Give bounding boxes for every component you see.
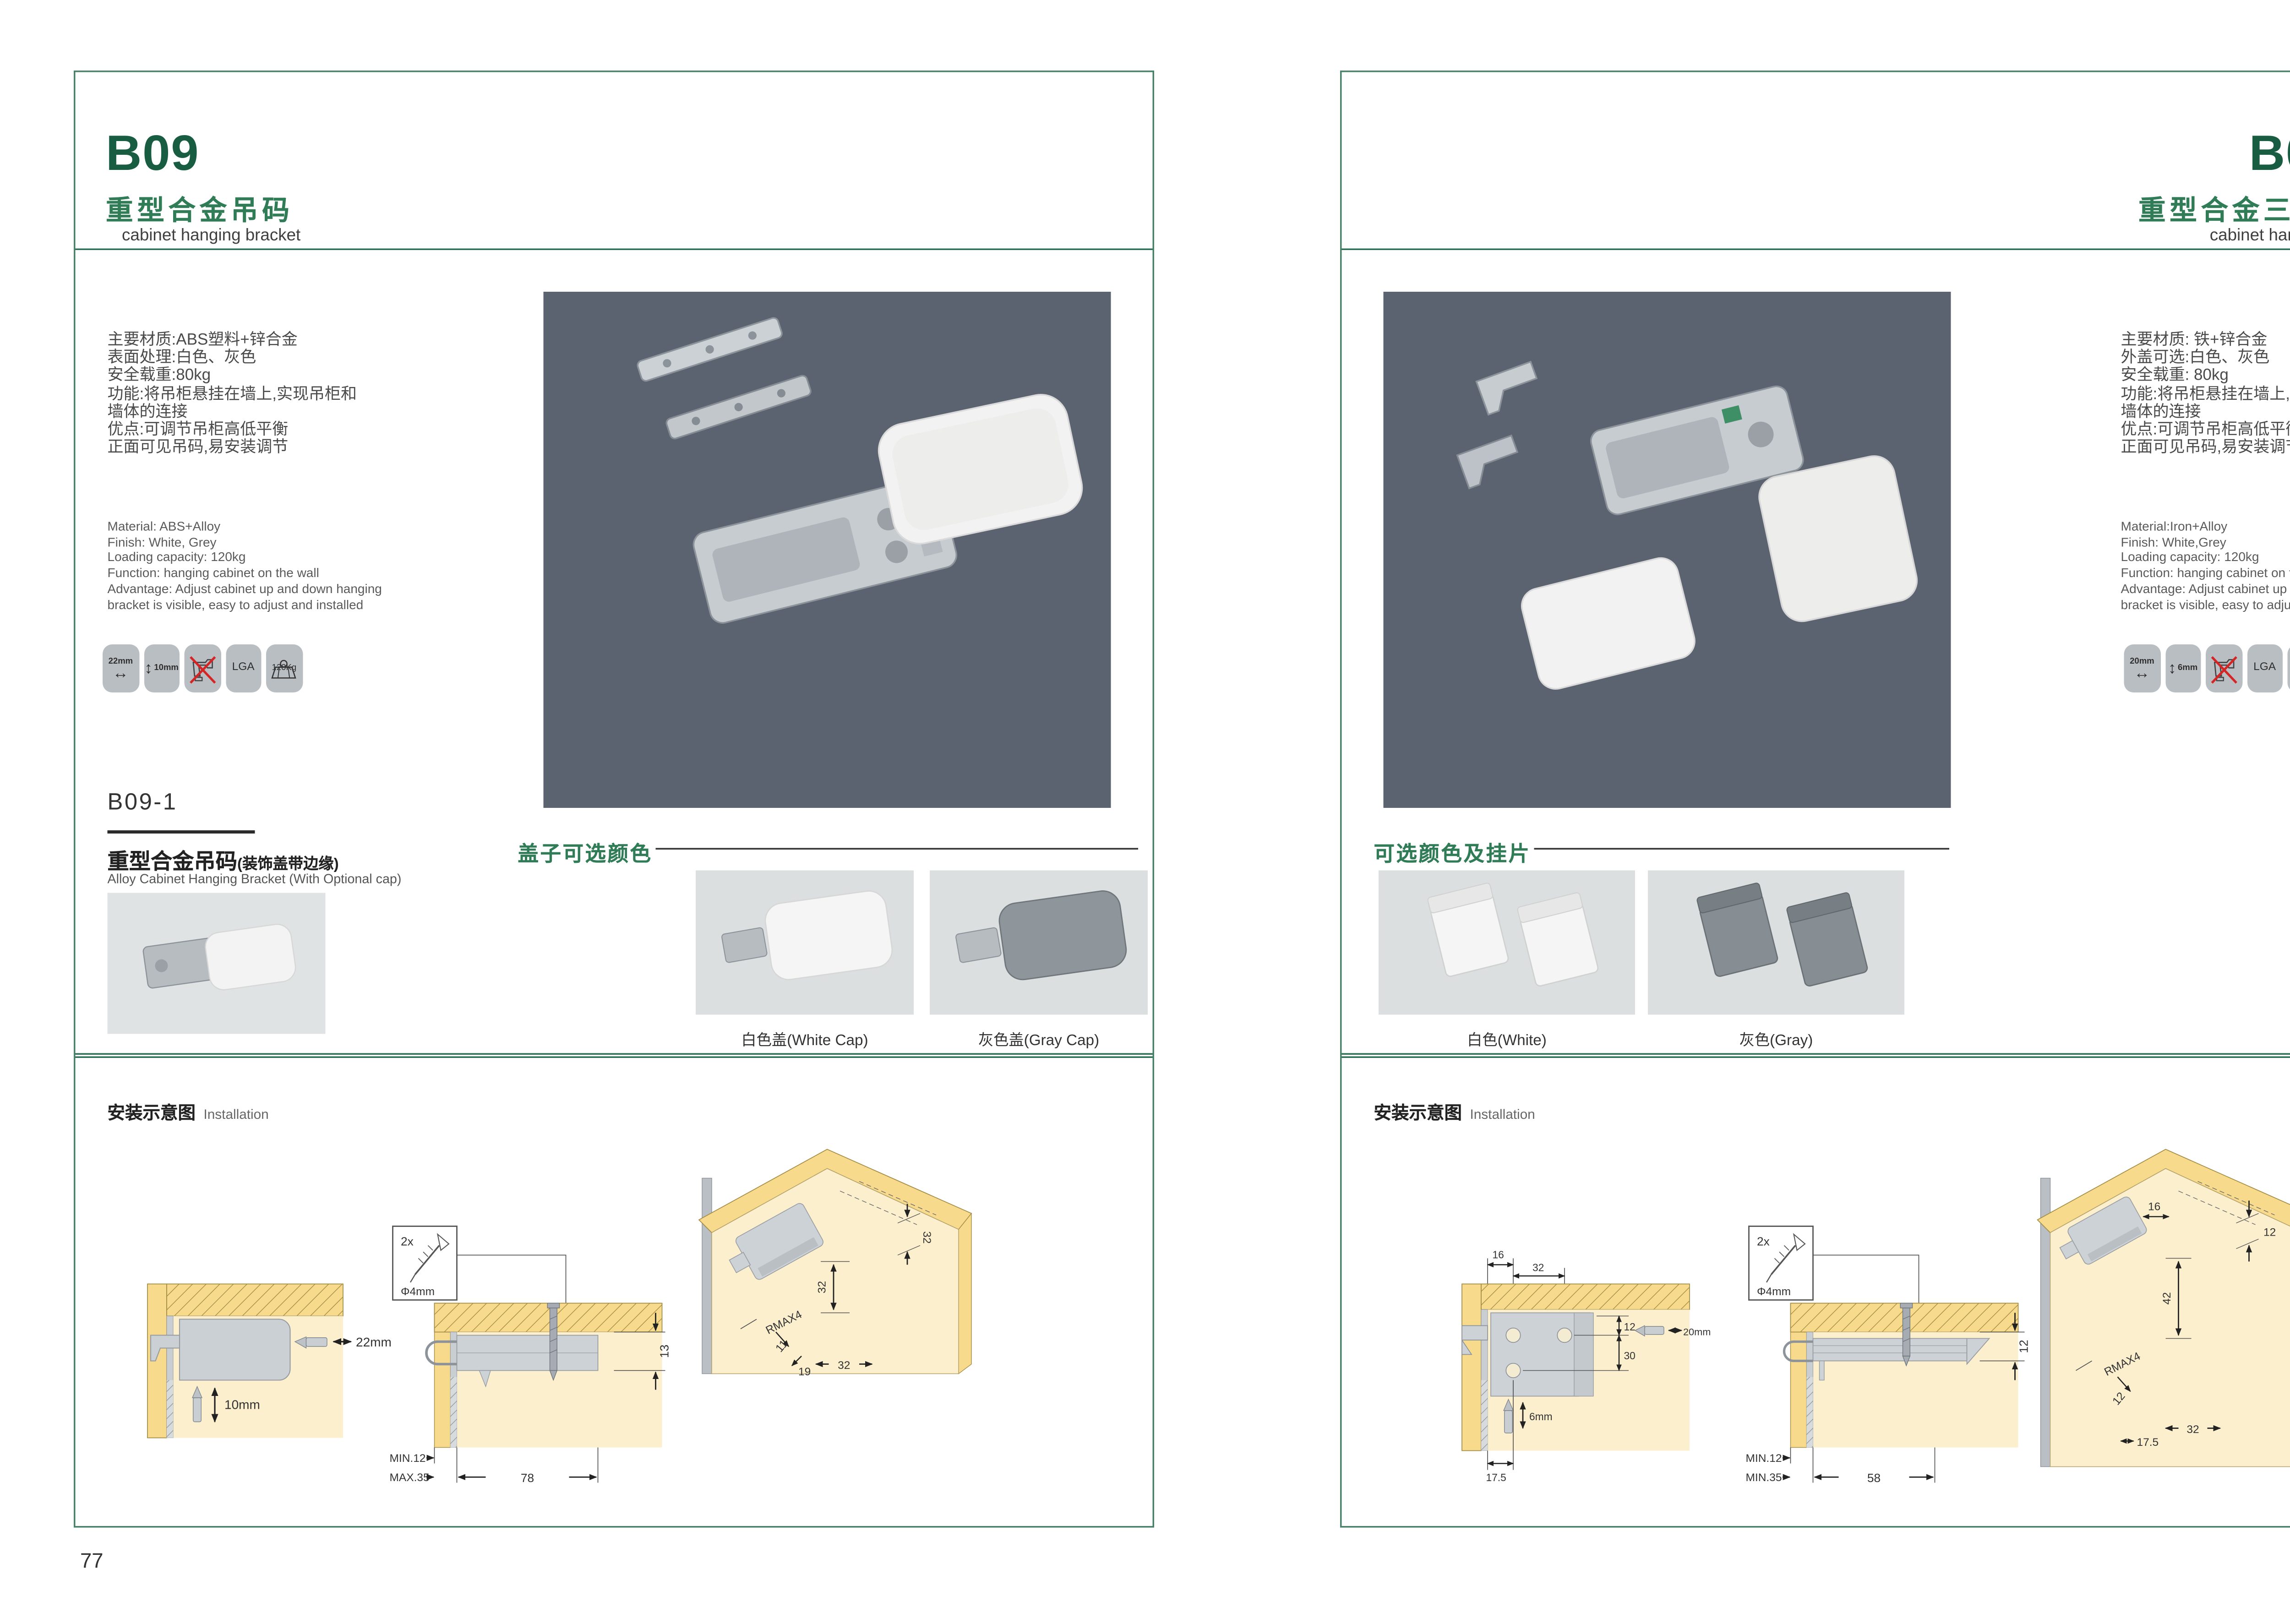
sub-underline bbox=[108, 830, 255, 833]
weight-icon bbox=[268, 658, 300, 679]
dim-label: 30 bbox=[1624, 1350, 1636, 1362]
vertical-arrow-icon: ↕ bbox=[144, 661, 153, 676]
dim-label: 19 bbox=[798, 1366, 811, 1378]
dim-label: 42 bbox=[2161, 1292, 2173, 1304]
section-divider bbox=[1342, 1053, 2290, 1059]
screw-dia-label: Φ4mm bbox=[1757, 1286, 1791, 1298]
height-value: 10mm bbox=[154, 664, 179, 673]
dim-label: 20mm bbox=[1683, 1326, 1711, 1338]
dim-label: MIN.12 bbox=[390, 1452, 426, 1465]
spec-line: 外盖可选:白色、灰色 bbox=[2121, 350, 2290, 368]
sub-title-en: Alloy Cabinet Hanging Bracket (With Opti… bbox=[108, 872, 402, 887]
dim-label: 16 bbox=[2148, 1201, 2160, 1213]
spec-line: Finish: White, Grey bbox=[108, 535, 556, 550]
dim-label: MIN.35 bbox=[1746, 1471, 1782, 1484]
header-divider bbox=[1342, 249, 2290, 250]
product-photo bbox=[544, 292, 1111, 808]
spec-line: 功能:将吊柜悬挂在墙上,实现吊柜和 bbox=[2121, 386, 2290, 403]
gray-clip-photo bbox=[1648, 871, 1904, 1015]
dim-label: 17.5 bbox=[1486, 1471, 1506, 1483]
spec-line: 正面可见吊码,易安装调节 bbox=[108, 440, 540, 458]
installation-title-en: Installation bbox=[1470, 1106, 1535, 1122]
dim-label: 32 bbox=[2186, 1423, 2199, 1436]
spec-text-en: Material:Iron+Alloy Finish: White,Grey L… bbox=[2121, 519, 2290, 613]
spec-line: 表面处理:白色、灰色 bbox=[108, 350, 540, 368]
spec-text-en: Material: ABS+Alloy Finish: White, Grey … bbox=[108, 519, 556, 613]
dim-label: 12 bbox=[1624, 1321, 1636, 1333]
spec-line: 安全载重:80kg bbox=[108, 368, 540, 386]
installation-title: 安装示意图Installation bbox=[1374, 1098, 1535, 1127]
spec-line: 正面可见吊码,易安装调节 bbox=[2121, 440, 2290, 458]
product-title-cn: 重型合金吊码 bbox=[106, 188, 294, 228]
sub-title-main: 重型合金吊码 bbox=[108, 850, 238, 874]
load-capacity-icon: 120Kg bbox=[266, 644, 302, 692]
spec-line: 主要材质: 铁+锌合金 bbox=[2121, 332, 2290, 350]
dim-label: 22mm bbox=[356, 1335, 392, 1349]
color-section-title: 可选颜色及挂片 bbox=[1374, 837, 1531, 867]
spec-text-cn: 主要材质: 铁+锌合金 外盖可选:白色、灰色 安全载重: 80kg 功能:将吊柜… bbox=[2121, 332, 2290, 458]
dim-label: 32 bbox=[921, 1231, 933, 1243]
dim-label: 16 bbox=[1493, 1249, 1504, 1261]
dim-label: 32 bbox=[816, 1281, 829, 1293]
lga-cert-icon: LGA bbox=[2246, 644, 2283, 692]
product-title-en: cabinet hanging bracket bbox=[2210, 226, 2290, 245]
dim-label: 6mm bbox=[1529, 1411, 1553, 1422]
white-caption: 白色(White) bbox=[1379, 1028, 1635, 1050]
spec-line: Loading capacity: 120kg bbox=[108, 550, 556, 566]
dim-label: 13 bbox=[658, 1345, 671, 1358]
catalog-page-right: B09-3 重型合金三孔吊码 cabinet hanging bracket bbox=[1340, 71, 2290, 1528]
spec-line: 墙体的连接 bbox=[2121, 403, 2290, 421]
horizontal-arrow-icon: ↔ bbox=[2134, 666, 2150, 681]
spec-line: bracket is visible, easy to adjust and i… bbox=[108, 597, 556, 613]
sub-product-photo bbox=[108, 893, 326, 1034]
catalog-page-left: B09 重型合金吊码 cabinet hanging bracket bbox=[74, 71, 1154, 1528]
dim-label: MIN.12 bbox=[1746, 1452, 1782, 1465]
screw-dia-label: Φ4mm bbox=[401, 1286, 435, 1298]
lga-cert-icon: LGA bbox=[225, 644, 262, 692]
product-code: B09 bbox=[106, 125, 199, 183]
no-drill-icon bbox=[185, 644, 221, 692]
height-adjust-icon: ↕ 10mm bbox=[143, 644, 180, 692]
no-drill-icon bbox=[2206, 644, 2242, 692]
cert-label: LGA bbox=[232, 664, 255, 673]
spec-line: 优点:可调节吊柜高低平衡 bbox=[2121, 422, 2290, 440]
dim-label: 32 bbox=[838, 1359, 850, 1372]
product-title-cn: 重型合金三孔吊码 bbox=[2138, 188, 2290, 228]
cert-label: LGA bbox=[2253, 664, 2276, 673]
dim-label: MAX.35 bbox=[390, 1471, 430, 1484]
page-number-left: 77 bbox=[80, 1548, 104, 1573]
spec-line: Function: hanging cabinet on the wall bbox=[108, 566, 556, 582]
product-photo bbox=[1384, 292, 1951, 808]
screw-qty-label: 2x bbox=[401, 1235, 414, 1248]
spec-text-cn: 主要材质:ABS塑料+锌合金 表面处理:白色、灰色 安全载重:80kg 功能:将… bbox=[108, 332, 540, 458]
spec-line: Loading capacity: 120kg bbox=[2121, 550, 2290, 566]
install-diagram-perspective: 16 42 12 RMAX4 12 17.5 32 bbox=[2031, 1146, 2290, 1475]
feature-icons: 22mm ↔ ↕ 10mm LGA 120Kg bbox=[103, 644, 302, 692]
install-diagram-section: 16 32 12 30 20mm bbox=[1462, 1243, 1711, 1483]
spec-line: Advantage: Adjust cabinet up and down ha… bbox=[2121, 582, 2290, 597]
dim-label: 12 bbox=[2263, 1226, 2276, 1239]
dim-label: 17.5 bbox=[2137, 1436, 2159, 1449]
spec-line: Finish: White,Grey bbox=[2121, 535, 2290, 550]
white-cap-caption: 白色盖(White Cap) bbox=[696, 1028, 914, 1050]
installation-title-cn: 安装示意图 bbox=[108, 1105, 196, 1124]
height-value: 6mm bbox=[2178, 664, 2197, 673]
gray-caption: 灰色(Gray) bbox=[1648, 1028, 1904, 1050]
spec-line: 功能:将吊柜悬挂在墙上,实现吊柜和 bbox=[108, 386, 540, 403]
install-diagram-screws: 2x Φ4mm 13 bbox=[390, 1223, 678, 1467]
spec-line: Material: ABS+Alloy bbox=[108, 519, 556, 535]
header-divider bbox=[76, 249, 1153, 250]
white-clip-photo bbox=[1379, 871, 1635, 1015]
screw-qty-label: 2x bbox=[1757, 1235, 1770, 1248]
spec-line: 墙体的连接 bbox=[108, 403, 540, 421]
sub-title-paren: (装饰盖带边缘) bbox=[237, 856, 339, 874]
spec-line: Function: hanging cabinet on the wall bbox=[2121, 566, 2290, 582]
installation-title-en: Installation bbox=[204, 1106, 269, 1122]
gray-cap-photo bbox=[930, 871, 1148, 1015]
product-title-en: cabinet hanging bracket bbox=[122, 226, 300, 245]
spec-line: 优点:可调节吊柜高低平衡 bbox=[108, 422, 540, 440]
height-adjust-icon: ↕ 6mm bbox=[2165, 644, 2201, 692]
dim-label: 58 bbox=[1867, 1471, 1881, 1485]
install-diagram-section: 22mm 10mm bbox=[147, 1275, 388, 1443]
color-section-rule bbox=[1534, 848, 1950, 850]
white-cover bbox=[1756, 452, 1921, 625]
section-divider bbox=[76, 1053, 1153, 1059]
dim-label: 12 bbox=[2017, 1340, 2031, 1353]
color-section-title: 盖子可选颜色 bbox=[518, 837, 653, 867]
spec-line: bracket is visible, easy to adjust and i… bbox=[2121, 597, 2290, 613]
spec-line: Material:Iron+Alloy bbox=[2121, 519, 2290, 535]
width-value: 22mm bbox=[109, 656, 133, 666]
white-cap-photo bbox=[696, 871, 914, 1015]
horizontal-arrow-icon: ↔ bbox=[113, 666, 129, 681]
vertical-arrow-icon: ↕ bbox=[2168, 661, 2176, 676]
spec-line: 安全载重: 80kg bbox=[2121, 368, 2290, 386]
install-diagram-perspective: 32 32 RMAX4 11 19 32 bbox=[692, 1140, 981, 1384]
color-section-rule bbox=[656, 848, 1139, 850]
installation-title: 安装示意图Installation bbox=[108, 1098, 269, 1127]
install-diagram-screws: 2x Φ4mm 12 bbox=[1746, 1223, 2034, 1467]
catalog-spread: B09 重型合金吊码 cabinet hanging bracket bbox=[0, 0, 2290, 1624]
dim-label: 10mm bbox=[224, 1398, 260, 1412]
dim-label: 32 bbox=[1532, 1262, 1544, 1274]
spec-line: 主要材质:ABS塑料+锌合金 bbox=[108, 332, 540, 350]
sub-title-cn: 重型合金吊码(装饰盖带边缘) bbox=[108, 843, 339, 875]
width-adjust-icon: 20mm ↔ bbox=[2124, 644, 2160, 692]
sub-product-code: B09-1 bbox=[108, 790, 178, 816]
spec-line: Advantage: Adjust cabinet up and down ha… bbox=[108, 582, 556, 597]
load-capacity-icon: 120Kg bbox=[2288, 644, 2290, 692]
dim-label: 78 bbox=[521, 1471, 534, 1485]
installation-title-cn: 安装示意图 bbox=[1374, 1105, 1462, 1124]
width-value: 20mm bbox=[2130, 656, 2154, 666]
width-adjust-icon: 22mm ↔ bbox=[103, 644, 139, 692]
gray-cap-caption: 灰色盖(Gray Cap) bbox=[930, 1028, 1148, 1050]
feature-icons: 20mm ↔ ↕ 6mm LGA 120Kg bbox=[2124, 644, 2290, 692]
product-code: B09-3 bbox=[2249, 125, 2290, 183]
